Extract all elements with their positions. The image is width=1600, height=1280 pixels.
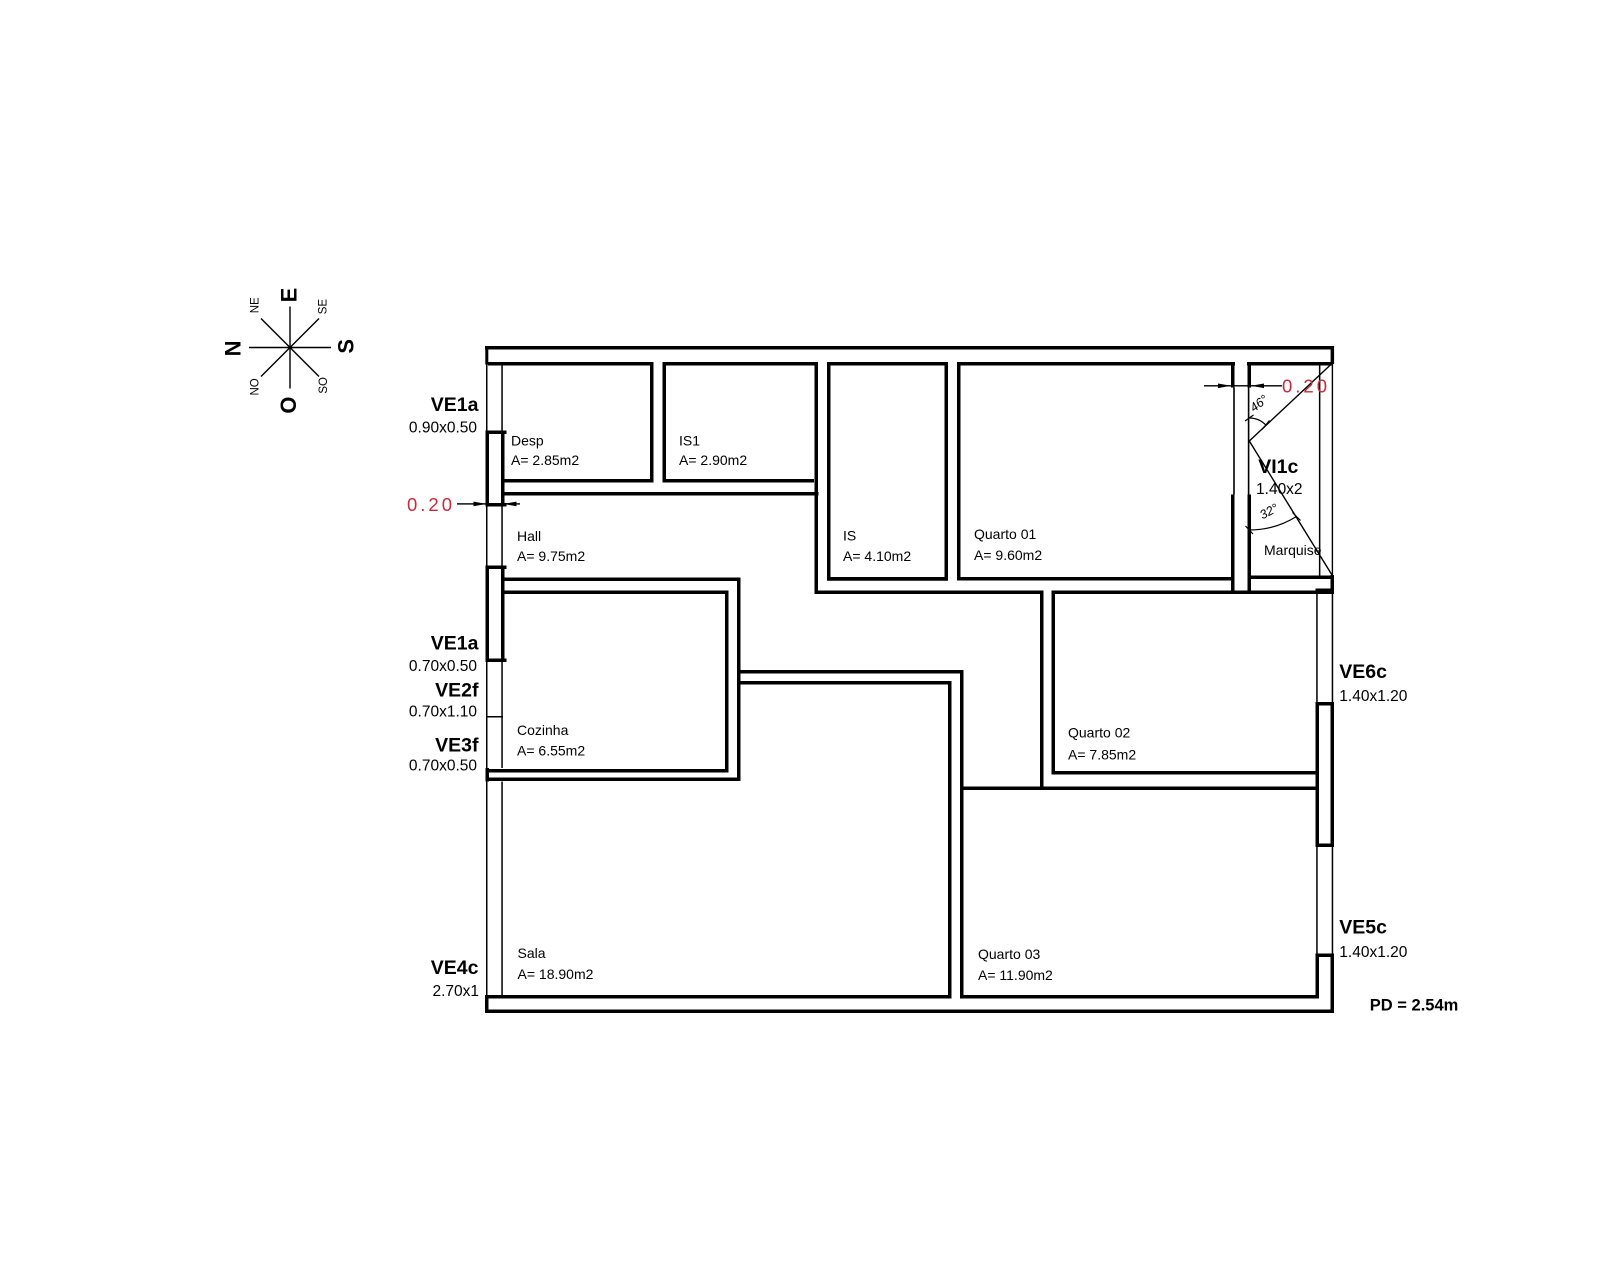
svg-text:Desp: Desp: [511, 433, 544, 449]
svg-text:VE1a: VE1a: [431, 394, 479, 416]
svg-text:0.70x1.10: 0.70x1.10: [409, 704, 477, 721]
svg-text:IS1: IS1: [679, 433, 700, 449]
svg-text:PD = 2.54m: PD = 2.54m: [1370, 997, 1459, 1015]
svg-text:A= 2.85m2: A= 2.85m2: [511, 452, 579, 468]
svg-text:2.70x1: 2.70x1: [432, 983, 479, 1000]
svg-text:NO: NO: [249, 378, 261, 395]
svg-text:VE3f: VE3f: [435, 734, 479, 756]
svg-text:0.20: 0.20: [407, 494, 455, 515]
svg-text:1.40x1.20: 1.40x1.20: [1339, 944, 1407, 961]
svg-text:0.90x0.50: 0.90x0.50: [409, 419, 477, 436]
svg-text:Quarto 03: Quarto 03: [978, 946, 1040, 962]
svg-text:Quarto 01: Quarto 01: [974, 526, 1036, 542]
svg-text:S: S: [334, 339, 359, 354]
svg-text:SE: SE: [317, 299, 329, 315]
svg-text:VE4c: VE4c: [431, 957, 479, 979]
svg-text:A= 9.60m2: A= 9.60m2: [974, 547, 1042, 563]
svg-text:Quarto 02: Quarto 02: [1068, 725, 1130, 741]
svg-text:IS: IS: [843, 528, 856, 544]
svg-text:N: N: [221, 340, 246, 356]
svg-text:Marquise: Marquise: [1264, 542, 1322, 558]
svg-text:VE1a: VE1a: [431, 632, 479, 654]
svg-text:1.40x2: 1.40x2: [1256, 481, 1303, 498]
svg-text:E: E: [277, 288, 302, 303]
svg-text:0.70x0.50: 0.70x0.50: [409, 658, 477, 675]
svg-text:0.20: 0.20: [1282, 376, 1330, 397]
svg-text:A= 11.90m2: A= 11.90m2: [978, 967, 1053, 983]
svg-text:Hall: Hall: [517, 528, 541, 544]
svg-text:A= 7.85m2: A= 7.85m2: [1068, 747, 1136, 763]
svg-text:O: O: [276, 396, 301, 413]
svg-text:A= 4.10m2: A= 4.10m2: [843, 548, 911, 564]
svg-text:VE5c: VE5c: [1339, 917, 1387, 939]
svg-text:VE6c: VE6c: [1339, 661, 1387, 683]
svg-text:A= 2.90m2: A= 2.90m2: [679, 452, 747, 468]
svg-text:A= 18.90m2: A= 18.90m2: [518, 966, 594, 982]
svg-text:0.70x0.50: 0.70x0.50: [409, 758, 477, 775]
svg-text:SO: SO: [318, 377, 330, 394]
svg-text:Cozinha: Cozinha: [517, 722, 569, 738]
svg-text:VE2f: VE2f: [435, 679, 479, 701]
svg-text:NE: NE: [249, 297, 261, 313]
svg-text:A= 9.75m2: A= 9.75m2: [517, 548, 585, 564]
svg-text:1.40x1.20: 1.40x1.20: [1339, 688, 1407, 705]
svg-text:A= 6.55m2: A= 6.55m2: [517, 743, 585, 759]
svg-text:VI1c: VI1c: [1258, 456, 1298, 478]
svg-text:Sala: Sala: [518, 945, 546, 961]
